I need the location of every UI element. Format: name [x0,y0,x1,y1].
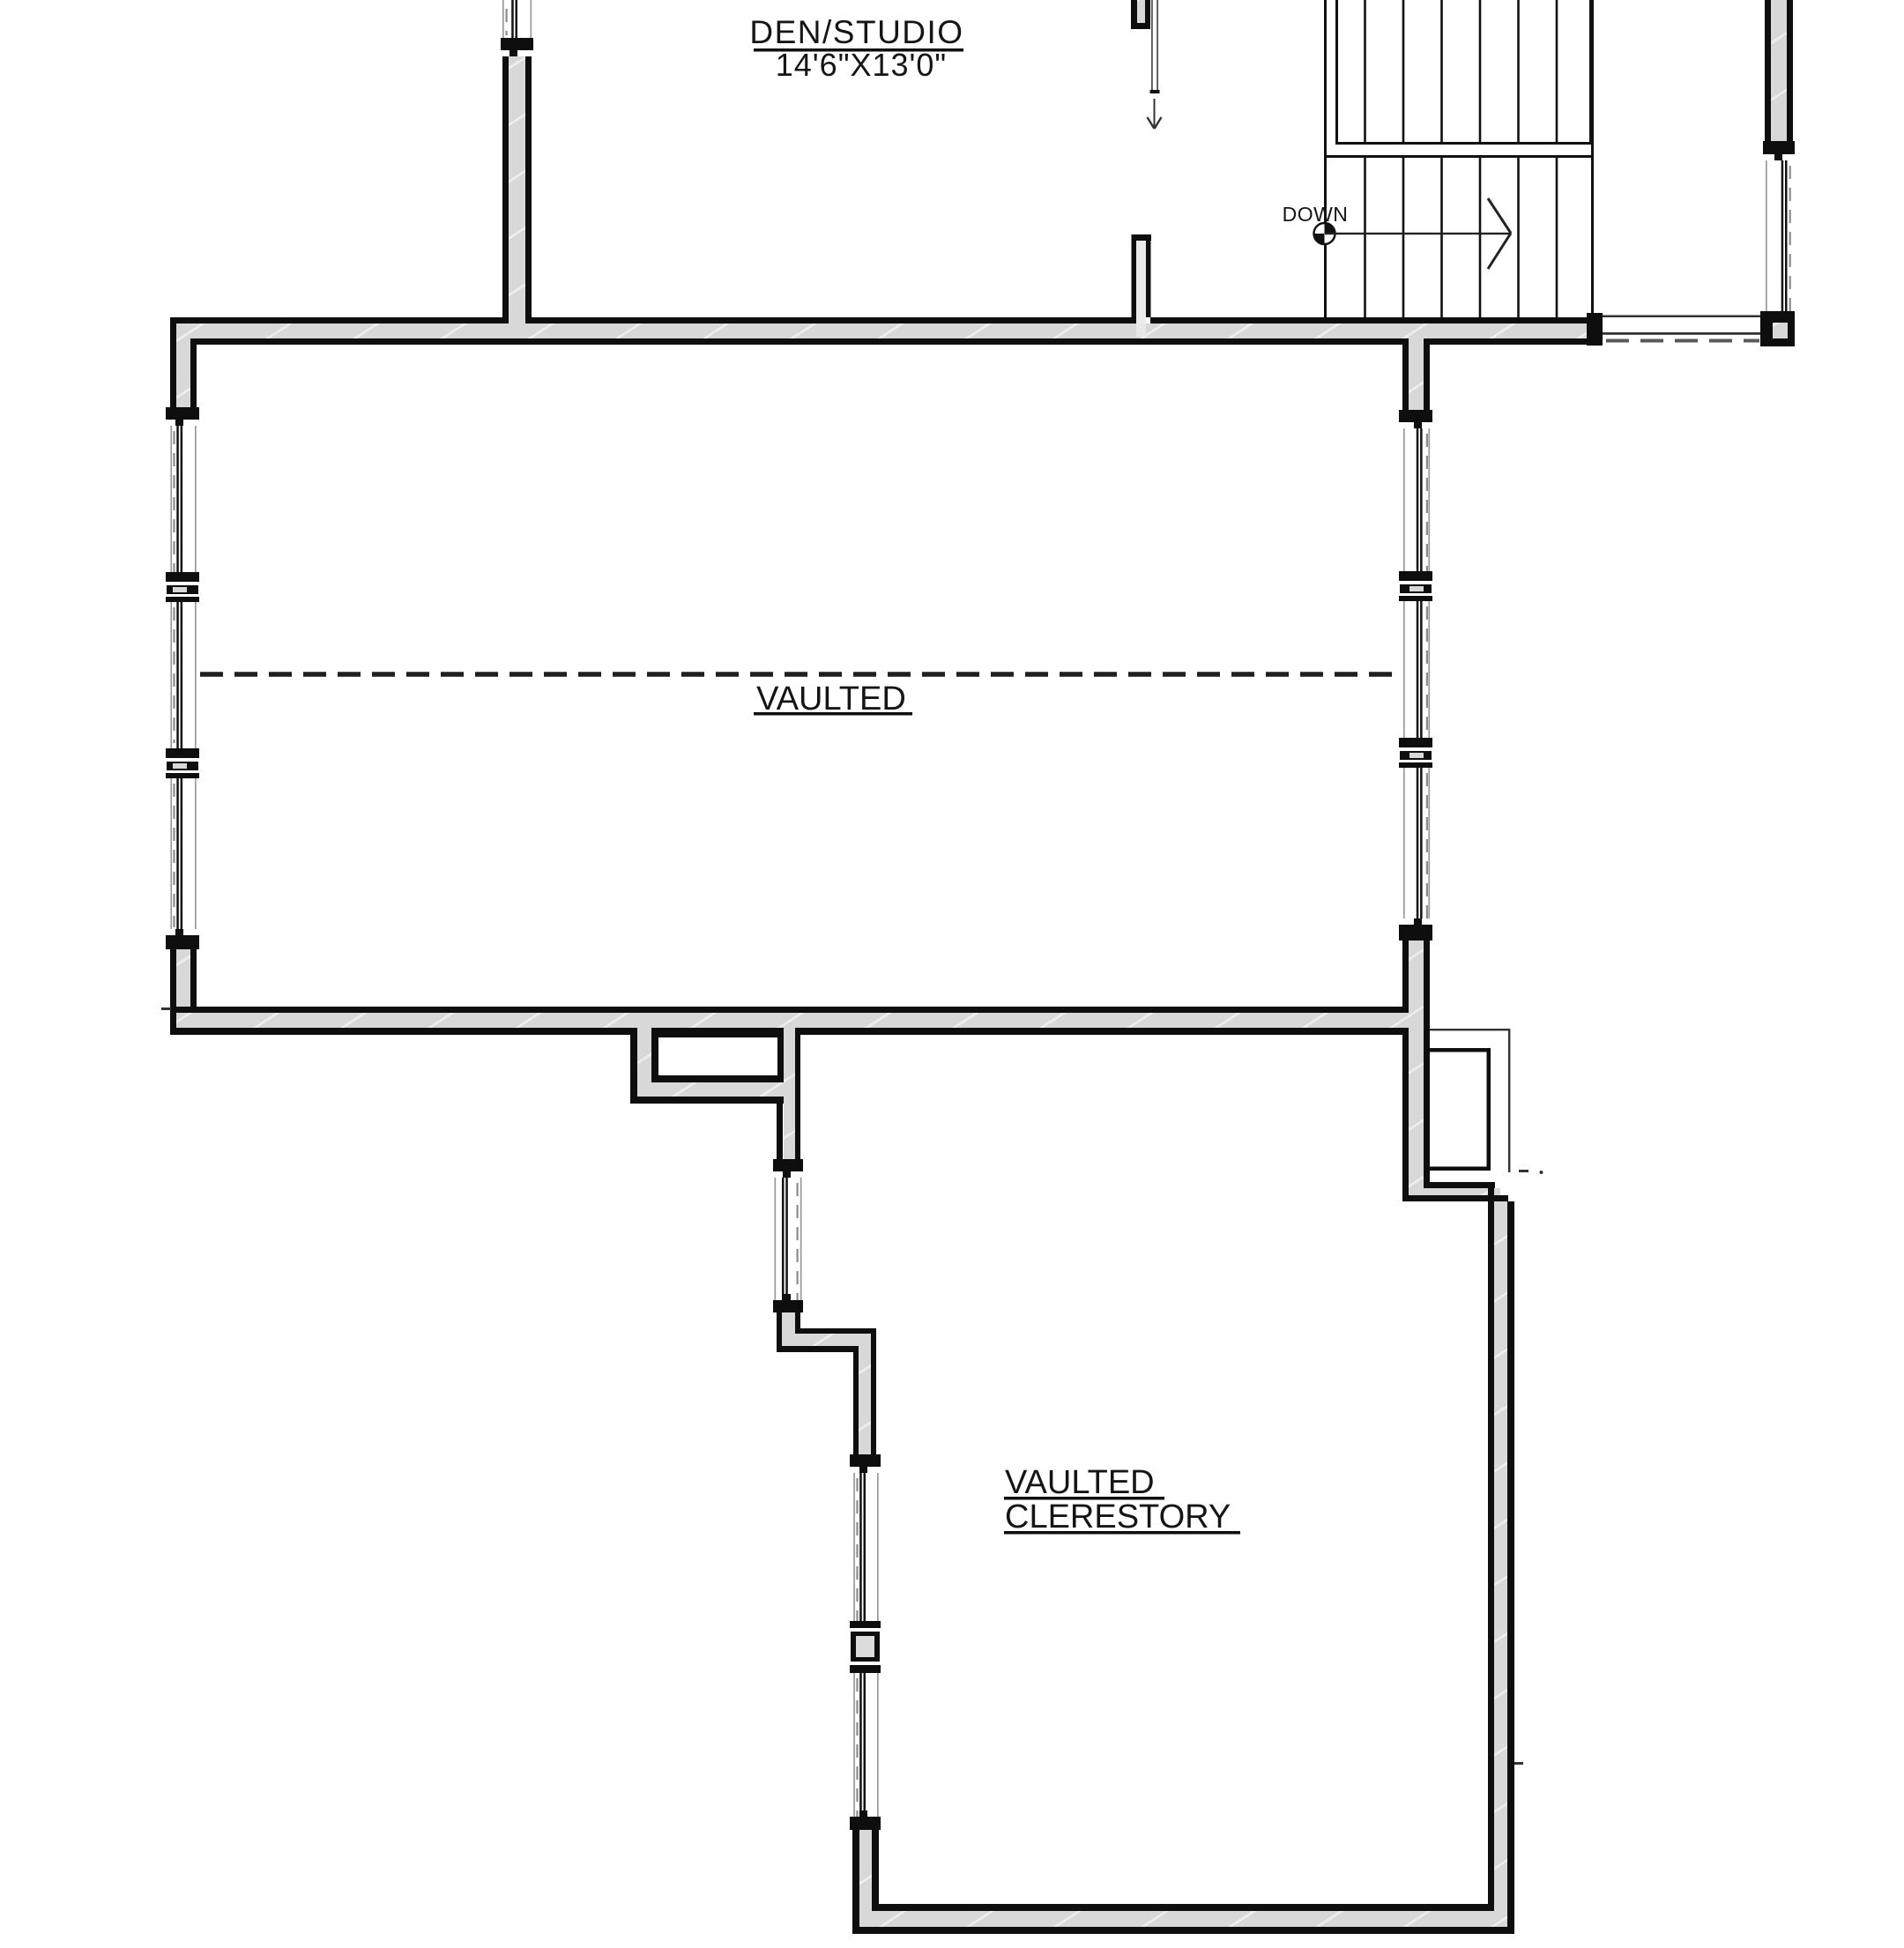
svg-text:VAULTED: VAULTED [1005,1464,1155,1501]
svg-text:DEN/STUDIO: DEN/STUDIO [749,14,963,50]
svg-text:14'6"X13'0": 14'6"X13'0" [776,47,947,83]
svg-text:VAULTED: VAULTED [756,680,906,717]
svg-text:CLERESTORY: CLERESTORY [1005,1498,1231,1535]
svg-text:DOWN: DOWN [1283,203,1349,226]
